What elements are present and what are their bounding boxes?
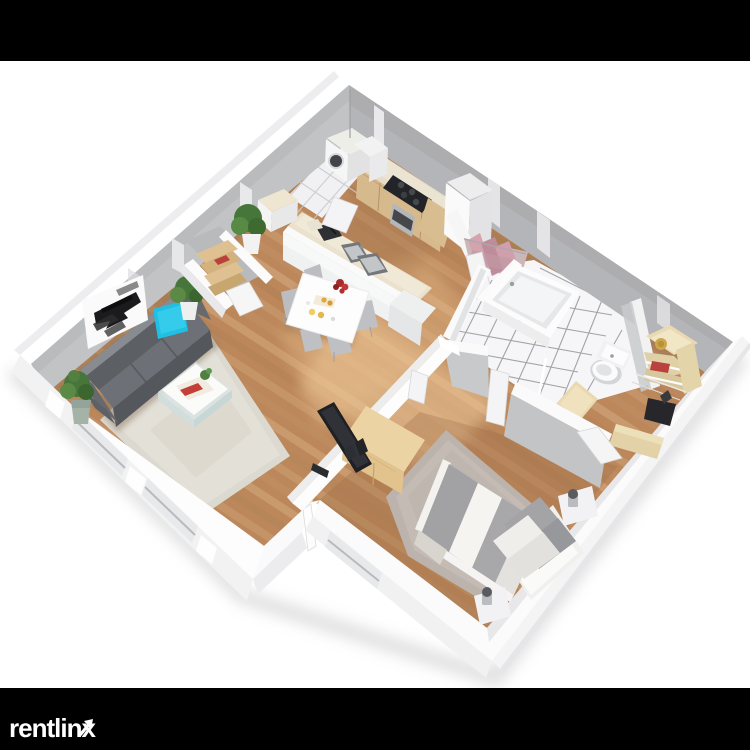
svg-text:rentlinx: rentlinx [9,713,96,743]
